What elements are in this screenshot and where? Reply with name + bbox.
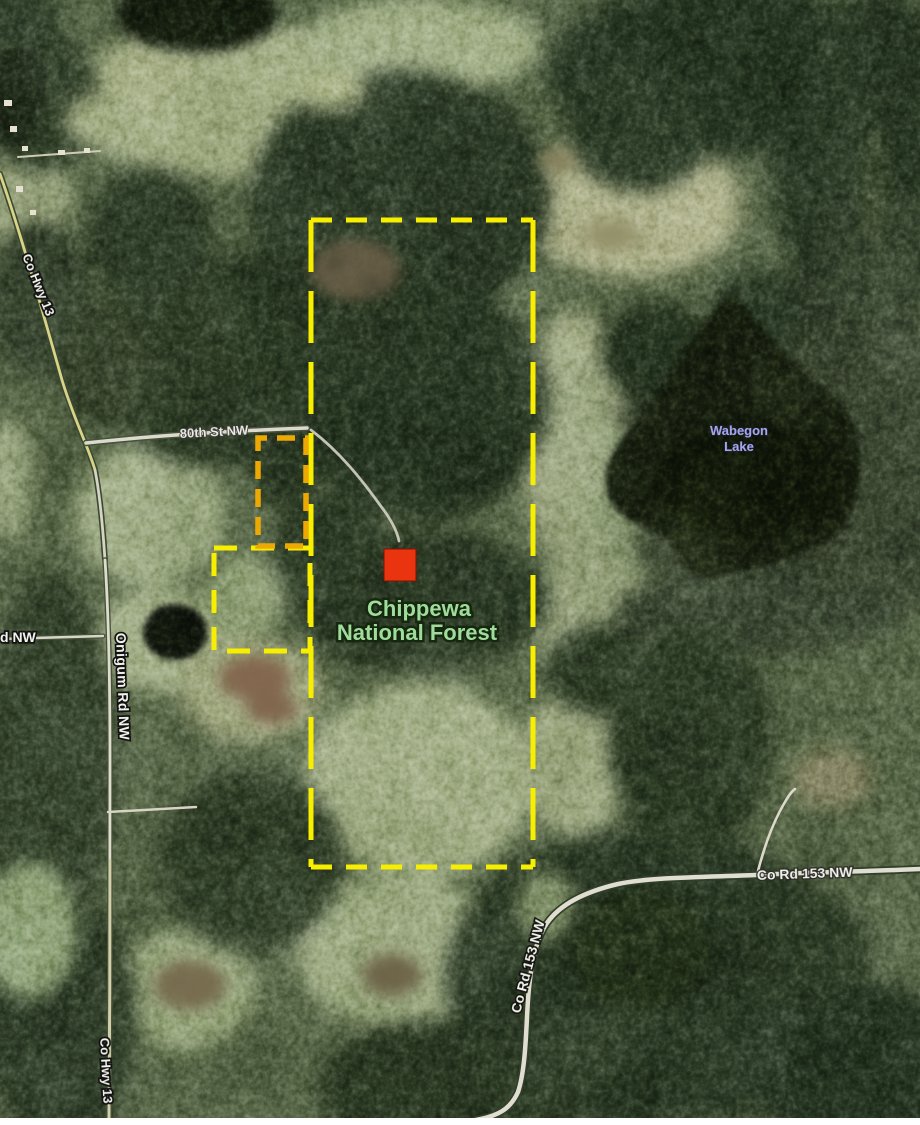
svg-text:Chippewa: Chippewa — [367, 596, 472, 621]
svg-text:Lake: Lake — [724, 439, 754, 454]
svg-text:Wabegon: Wabegon — [710, 423, 768, 438]
svg-text:d NW: d NW — [0, 629, 37, 645]
svg-text:National Forest: National Forest — [337, 620, 498, 645]
svg-text:Co Rd 153 NW: Co Rd 153 NW — [757, 864, 854, 883]
